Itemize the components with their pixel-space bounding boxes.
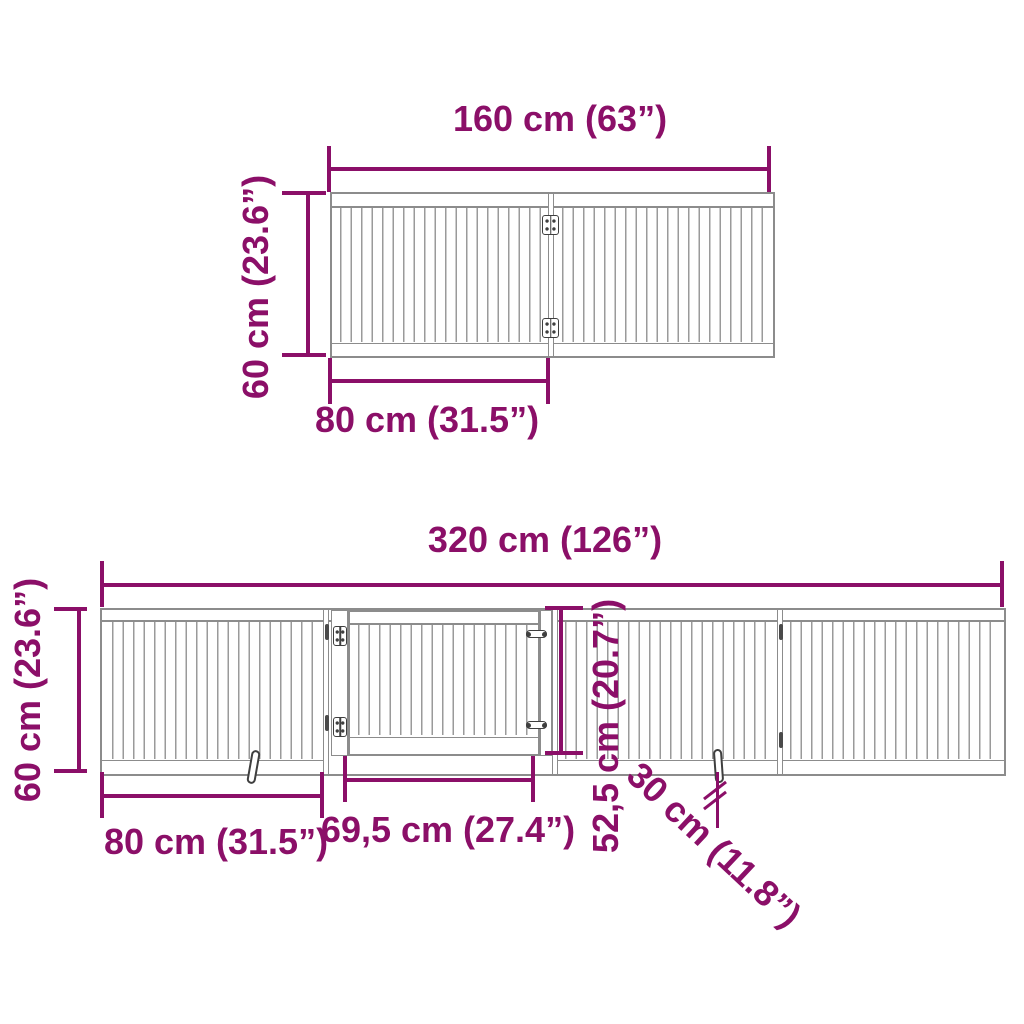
diagram-canvas: 160 cm (63”) 60 cm (23.6”) 80 cm (31.5”) (0, 0, 1024, 1024)
dimension-tick (282, 353, 326, 357)
top-view: 160 cm (63”) 60 cm (23.6”) 80 cm (31.5”) (0, 0, 1024, 470)
bottom-view: 320 cm (126”) 60 cm (23.6”) 52,5 cm (20.… (0, 470, 1024, 1024)
hinge-icon (325, 624, 329, 640)
dimension-tick (54, 607, 87, 611)
gate-outline-top-view (330, 192, 775, 358)
door-bottom-rail-line (350, 737, 538, 739)
panel-width-dimension-line (330, 379, 550, 383)
dimension-tick (328, 358, 332, 404)
hinge-icon (333, 717, 347, 737)
panel-slats (112, 622, 316, 759)
hinge-icon (779, 732, 783, 748)
dimension-tick (343, 756, 347, 802)
latch-pin-icon (526, 630, 547, 638)
width-dimension-label: 320 cm (126”) (345, 519, 745, 561)
panel-width-dimension-label: 80 cm (31.5”) (16, 821, 416, 863)
door-slats (358, 625, 530, 735)
dimension-tick (100, 561, 104, 607)
panel-width-dimension-label: 80 cm (31.5”) (227, 399, 627, 441)
panel-junction (552, 610, 558, 774)
panel-junction (323, 610, 329, 774)
hinge-icon (542, 318, 559, 338)
panel-junction (777, 610, 783, 774)
latch-pin-icon (526, 721, 547, 729)
panel-width-dimension-line (102, 794, 322, 798)
hinge-icon (325, 715, 329, 731)
hinge-icon (333, 626, 347, 646)
height-dimension-line (77, 609, 81, 773)
width-dimension-line (102, 583, 1004, 587)
width-dimension-line (330, 167, 770, 171)
dimension-tick (54, 769, 87, 773)
height-dimension-line (306, 193, 310, 357)
width-dimension-label: 160 cm (63”) (360, 98, 760, 140)
dimension-tick (545, 606, 583, 610)
dimension-tick (320, 772, 324, 818)
panel-slats (790, 622, 994, 759)
bottom-rail-line (102, 760, 323, 762)
hinge-icon (779, 624, 783, 640)
door-panel (348, 610, 540, 756)
dimension-tick (100, 772, 104, 818)
dimension-tick (327, 146, 331, 192)
height-dimension-label: 60 cm (23.6”) (7, 520, 49, 860)
dimension-tick (1000, 561, 1004, 607)
panel-slats (562, 208, 764, 342)
door-width-dimension-line (345, 778, 535, 782)
panel-slats (340, 208, 542, 342)
hinge-icon (542, 215, 559, 235)
dimension-tick (545, 751, 583, 755)
door-height-dimension-line (559, 608, 563, 755)
dimension-tick (546, 358, 550, 404)
dimension-tick (531, 756, 535, 802)
dimension-tick (282, 191, 326, 195)
dimension-tick (767, 146, 771, 192)
